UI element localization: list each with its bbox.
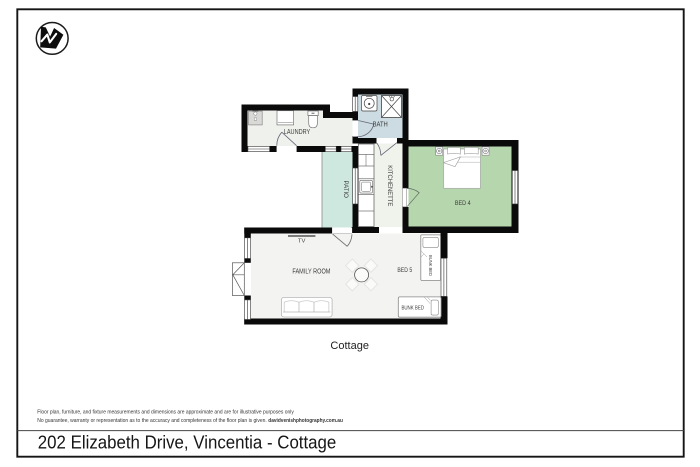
svg-text:LAUNDRY: LAUNDRY (284, 129, 311, 136)
svg-text:BED 4: BED 4 (455, 200, 471, 207)
svg-text:TV: TV (298, 238, 306, 244)
svg-text:No guarantee, warranty or repr: No guarantee, warranty or representation… (37, 418, 267, 424)
svg-text:davidvenishphotography.com.au: davidvenishphotography.com.au (268, 418, 343, 424)
svg-text:BUNK BED: BUNK BED (427, 255, 433, 276)
svg-text:Cottage: Cottage (330, 340, 369, 352)
svg-text:Floor plan, furniture, and fix: Floor plan, furniture, and fixture measu… (37, 410, 294, 416)
svg-text:BUNK BED: BUNK BED (401, 305, 424, 311)
svg-text:PATIO: PATIO (342, 180, 349, 198)
svg-text:BED 5: BED 5 (397, 267, 412, 274)
svg-text:BATH: BATH (373, 121, 388, 128)
svg-text:202 Elizabeth Drive, Vincentia: 202 Elizabeth Drive, Vincentia - Cottage (38, 431, 337, 452)
svg-text:KITCHENETTE: KITCHENETTE (386, 165, 393, 206)
svg-text:FAMILY ROOM: FAMILY ROOM (292, 269, 330, 276)
